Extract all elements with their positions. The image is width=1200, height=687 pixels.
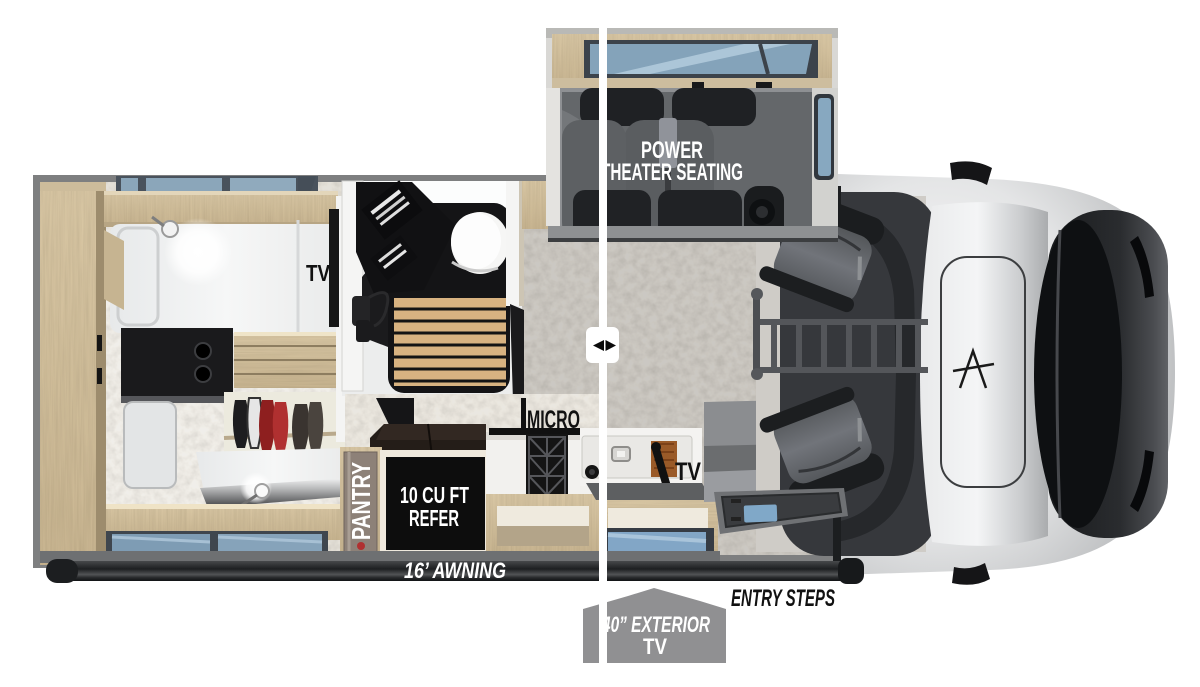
svg-text:REFER: REFER (409, 505, 459, 531)
svg-text:TV: TV (306, 260, 331, 286)
svg-text:MICRO: MICRO (527, 406, 580, 434)
svg-text:PANTRY: PANTRY (346, 462, 376, 540)
svg-text:TV: TV (643, 634, 667, 659)
svg-text:ENTRY STEPS: ENTRY STEPS (731, 585, 835, 612)
svg-text:THEATER SEATING: THEATER SEATING (601, 159, 743, 186)
svg-text:TV: TV (675, 458, 701, 486)
svg-text:16’ AWNING: 16’ AWNING (404, 558, 506, 583)
